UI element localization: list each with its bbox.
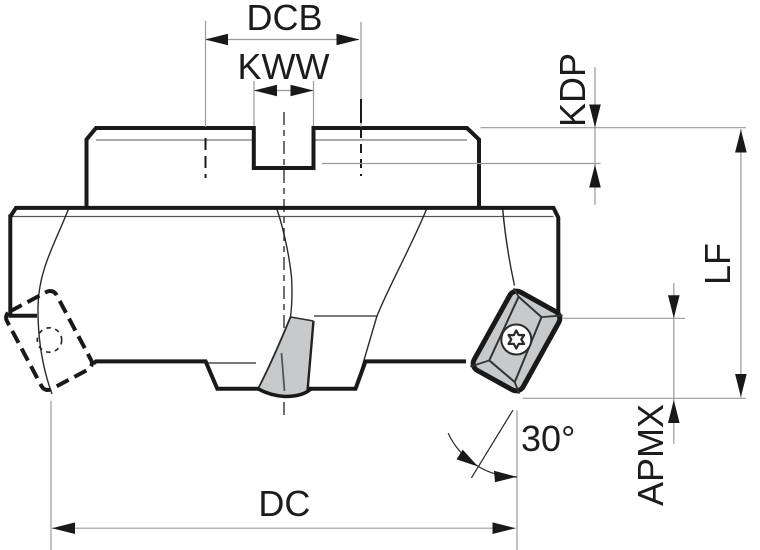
svg-text:30°: 30° xyxy=(521,418,575,459)
svg-text:DC: DC xyxy=(258,483,310,524)
svg-text:APMX: APMX xyxy=(630,404,671,506)
svg-text:DCB: DCB xyxy=(246,0,322,38)
svg-text:KWW: KWW xyxy=(238,46,330,87)
svg-text:LF: LF xyxy=(697,243,738,285)
svg-text:KDP: KDP xyxy=(552,53,593,127)
